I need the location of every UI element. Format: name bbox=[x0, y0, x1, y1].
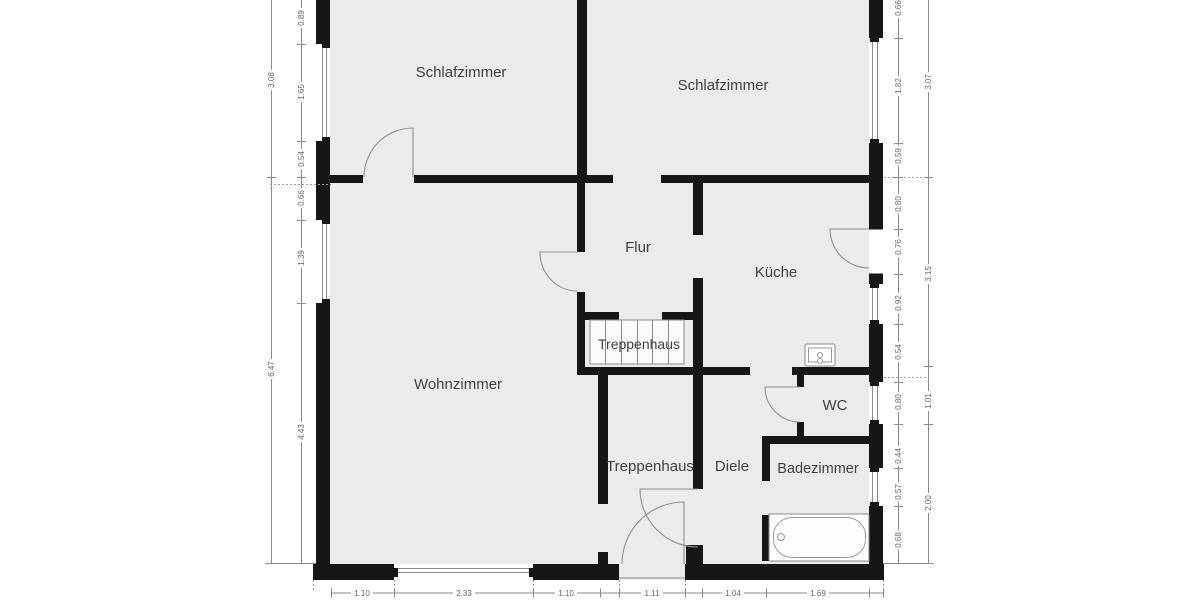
svg-text:0.80: 0.80 bbox=[894, 196, 903, 212]
svg-text:0.54: 0.54 bbox=[297, 151, 306, 167]
svg-text:0.92: 0.92 bbox=[894, 295, 903, 311]
svg-text:0.66: 0.66 bbox=[297, 190, 306, 206]
svg-text:0.76: 0.76 bbox=[894, 239, 903, 255]
svg-text:1.65: 1.65 bbox=[297, 84, 306, 100]
svg-text:0.68: 0.68 bbox=[894, 532, 903, 548]
svg-text:Wohnzimmer: Wohnzimmer bbox=[414, 376, 502, 393]
svg-text:Treppenhaus: Treppenhaus bbox=[606, 458, 694, 475]
svg-text:1.11: 1.11 bbox=[645, 589, 661, 598]
svg-text:1.10: 1.10 bbox=[354, 589, 370, 598]
svg-text:1.82: 1.82 bbox=[894, 78, 903, 94]
svg-text:3.15: 3.15 bbox=[924, 266, 933, 282]
svg-text:6.47: 6.47 bbox=[267, 361, 276, 377]
svg-text:0.57: 0.57 bbox=[894, 484, 903, 500]
svg-text:1.39: 1.39 bbox=[297, 250, 306, 266]
svg-text:1.01: 1.01 bbox=[924, 393, 933, 409]
svg-text:4.43: 4.43 bbox=[297, 424, 306, 440]
svg-text:1.04: 1.04 bbox=[725, 589, 741, 598]
svg-text:WC: WC bbox=[823, 397, 848, 414]
svg-text:1.10: 1.10 bbox=[558, 589, 574, 598]
svg-text:Schlafzimmer: Schlafzimmer bbox=[678, 77, 769, 94]
svg-text:0.44: 0.44 bbox=[894, 448, 903, 464]
svg-text:2.00: 2.00 bbox=[924, 495, 933, 511]
svg-text:Flur: Flur bbox=[625, 239, 651, 256]
svg-text:3.07: 3.07 bbox=[924, 74, 933, 90]
svg-text:2.33: 2.33 bbox=[456, 589, 472, 598]
svg-text:Badezimmer: Badezimmer bbox=[777, 461, 859, 477]
svg-text:0.89: 0.89 bbox=[297, 10, 306, 26]
svg-text:0.66: 0.66 bbox=[894, 0, 903, 16]
svg-text:Diele: Diele bbox=[715, 458, 749, 475]
svg-text:0.59: 0.59 bbox=[894, 148, 903, 164]
svg-text:0.80: 0.80 bbox=[894, 394, 903, 410]
svg-text:0.54: 0.54 bbox=[894, 344, 903, 360]
svg-text:1.69: 1.69 bbox=[810, 589, 826, 598]
svg-text:Küche: Küche bbox=[755, 264, 798, 281]
svg-text:Treppenhaus: Treppenhaus bbox=[598, 336, 680, 352]
svg-text:3.08: 3.08 bbox=[267, 72, 276, 88]
svg-text:Schlafzimmer: Schlafzimmer bbox=[416, 64, 507, 81]
